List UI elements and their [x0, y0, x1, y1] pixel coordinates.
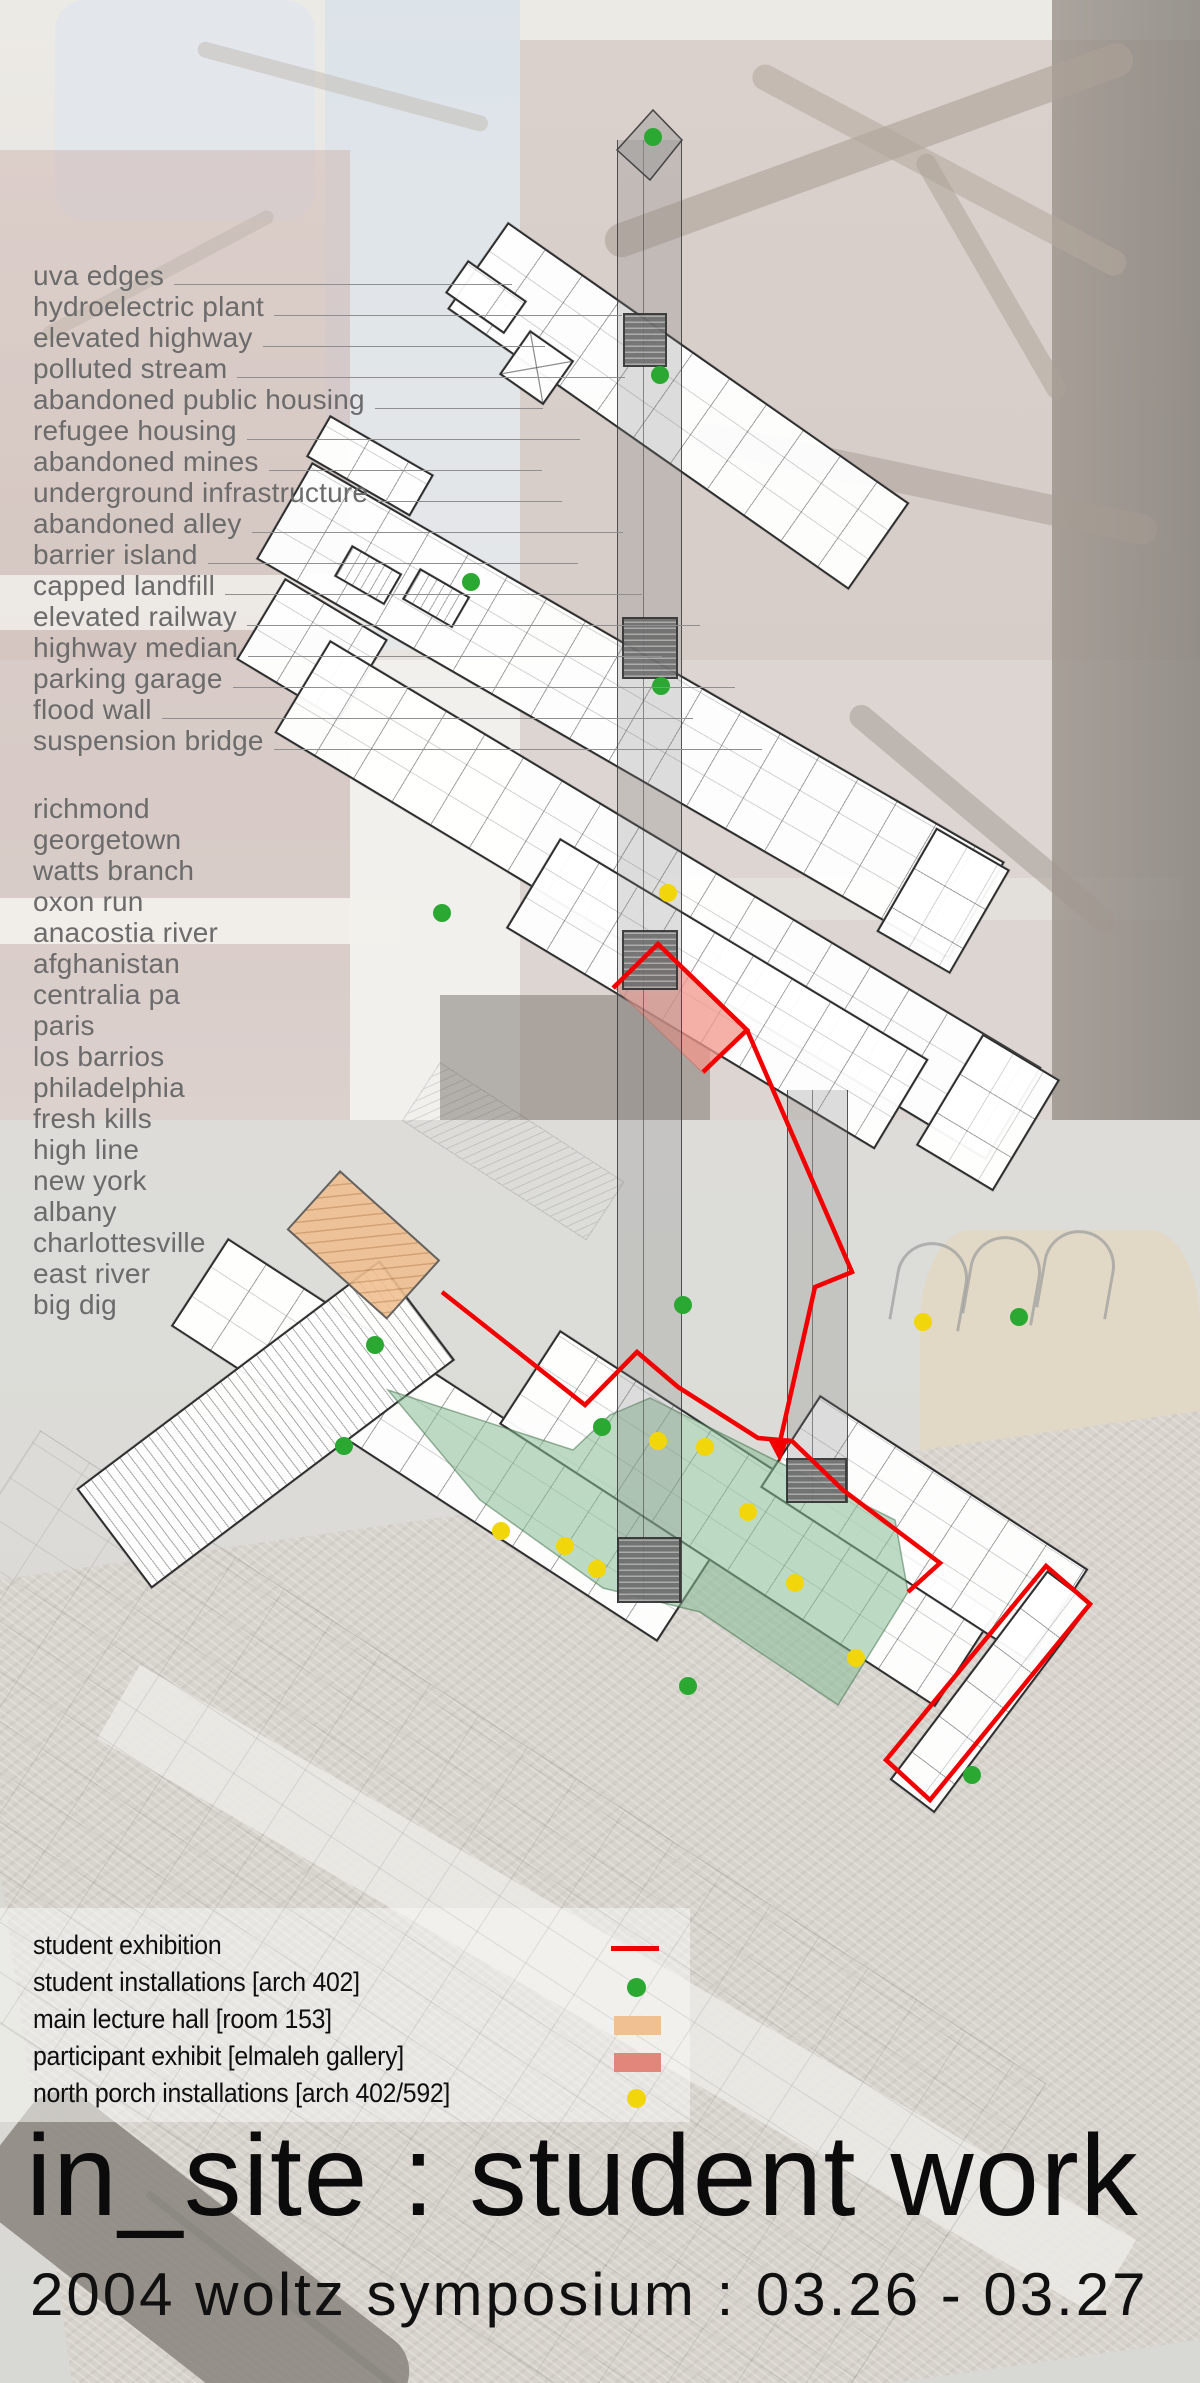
site-label: afghanistan [33, 948, 218, 979]
yellow-porch-dot [696, 1438, 714, 1456]
concept-label-row: hydroelectric plant [33, 291, 622, 322]
yellow-porch-dot [556, 1537, 574, 1555]
concept-label: abandoned alley [33, 508, 242, 539]
leader-line [247, 439, 580, 440]
leader-line [263, 346, 545, 347]
yellow-porch-dot [739, 1503, 757, 1521]
site-label: east river [33, 1258, 218, 1289]
leader-line [269, 470, 542, 471]
green-installation-dot [593, 1418, 611, 1436]
yellow-porch-dot [649, 1432, 667, 1450]
green-installation-dot [644, 128, 662, 146]
concept-label-row: barrier island [33, 539, 578, 570]
site-label: paris [33, 1010, 218, 1041]
legend-marker-rect-icon [614, 2016, 661, 2035]
site-label: new york [33, 1165, 218, 1196]
site-label: high line [33, 1134, 218, 1165]
legend-row: participant exhibit [elmaleh gallery] [33, 2039, 693, 2076]
yellow-porch-dot [492, 1522, 510, 1540]
legend-marker-rect-icon [614, 2053, 661, 2072]
concept-label-row: abandoned mines [33, 446, 542, 477]
concept-label-row: elevated railway [33, 601, 700, 632]
site-label: richmond [33, 793, 218, 824]
leader-line [252, 532, 623, 533]
legend-row: main lecture hall [room 153] [33, 2002, 693, 2039]
concept-label: hydroelectric plant [33, 291, 264, 322]
leader-line [378, 501, 562, 502]
leader-line [208, 563, 578, 564]
site-label: philadelphia [33, 1072, 218, 1103]
legend-row: north porch installations [arch 402/592] [33, 2076, 693, 2113]
legend-label: student installations [arch 402] [33, 1965, 360, 1999]
legend: student exhibitionstudent installations … [33, 1928, 693, 2113]
legend-row: student installations [arch 402] [33, 1965, 693, 2002]
concept-label-row: suspension bridge [33, 725, 762, 756]
leader-line [247, 625, 700, 626]
concept-label: uva edges [33, 260, 164, 291]
green-installation-dot [963, 1766, 981, 1784]
green-installation-dot [679, 1677, 697, 1695]
site-label: albany [33, 1196, 218, 1227]
poster: uva edgeshydroelectric plantelevated hig… [0, 0, 1200, 2383]
concept-label: abandoned mines [33, 446, 259, 477]
concept-label: parking garage [33, 663, 223, 694]
concept-label-row: highway median [33, 632, 662, 663]
concept-label-row: parking garage [33, 663, 735, 694]
green-installation-dot [1010, 1308, 1028, 1326]
page-title: in_site : student work [26, 2116, 1139, 2238]
site-label: big dig [33, 1289, 218, 1320]
legend-label: participant exhibit [elmaleh gallery] [33, 2039, 404, 2073]
leader-line [375, 408, 543, 409]
legend-marker-dot-icon [627, 1978, 646, 1997]
leader-line [174, 284, 512, 285]
stair-shaft [787, 1090, 848, 1503]
concept-label: elevated highway [33, 322, 253, 353]
legend-row: student exhibition [33, 1928, 693, 1965]
concept-label: suspension bridge [33, 725, 264, 756]
green-installation-dot [335, 1437, 353, 1455]
concept-label: elevated railway [33, 601, 237, 632]
leader-line [233, 687, 735, 688]
stair-core [617, 1537, 681, 1603]
legend-marker-dot-icon [627, 2089, 646, 2108]
site-label: oxon run [33, 886, 218, 917]
legend-label: main lecture hall [room 153] [33, 2002, 332, 2036]
concept-label-list: uva edgeshydroelectric plantelevated hig… [33, 260, 762, 756]
stair-core [786, 1458, 847, 1503]
concept-label-row: refugee housing [33, 415, 580, 446]
concept-label: polluted stream [33, 353, 227, 384]
concept-label: refugee housing [33, 415, 237, 446]
concept-label: barrier island [33, 539, 198, 570]
concept-label-row: abandoned alley [33, 508, 623, 539]
yellow-porch-dot [786, 1574, 804, 1592]
leader-line [274, 749, 762, 750]
site-label: centralia pa [33, 979, 218, 1010]
site-label: georgetown [33, 824, 218, 855]
green-installation-dot [674, 1296, 692, 1314]
concept-label: abandoned public housing [33, 384, 365, 415]
yellow-porch-dot [847, 1649, 865, 1667]
site-label-list: richmondgeorgetownwatts branchoxon runan… [33, 793, 218, 1320]
concept-label-row: abandoned public housing [33, 384, 543, 415]
green-installation-dot [366, 1336, 384, 1354]
yellow-porch-dot [659, 884, 677, 902]
leader-line [274, 315, 622, 316]
concept-label-row: flood wall [33, 694, 693, 725]
leader-line [162, 718, 693, 719]
legend-label: north porch installations [arch 402/592] [33, 2076, 450, 2110]
legend-label: student exhibition [33, 1928, 221, 1962]
site-label: fresh kills [33, 1103, 218, 1134]
concept-label-row: elevated highway [33, 322, 545, 353]
yellow-porch-dot [914, 1313, 932, 1331]
concept-label-row: capped landfill [33, 570, 642, 601]
stair-core [622, 930, 678, 990]
concept-label-row: uva edges [33, 260, 512, 291]
site-label: watts branch [33, 855, 218, 886]
legend-marker-line-icon [611, 1946, 659, 1951]
leader-line [248, 656, 662, 657]
concept-label: flood wall [33, 694, 152, 725]
concept-label: highway median [33, 632, 238, 663]
green-installation-dot [433, 904, 451, 922]
yellow-porch-dot [588, 1560, 606, 1578]
site-label: los barrios [33, 1041, 218, 1072]
concept-label: capped landfill [33, 570, 215, 601]
concept-label-row: underground infrastructure [33, 477, 562, 508]
leader-line [225, 594, 642, 595]
leader-line [237, 377, 625, 378]
concept-label-row: polluted stream [33, 353, 625, 384]
concept-label: underground infrastructure [33, 477, 368, 508]
site-label: charlottesville [33, 1227, 218, 1258]
site-label: anacostia river [33, 917, 218, 948]
page-subtitle: 2004 woltz symposium : 03.26 - 03.27 [30, 2262, 1149, 2328]
